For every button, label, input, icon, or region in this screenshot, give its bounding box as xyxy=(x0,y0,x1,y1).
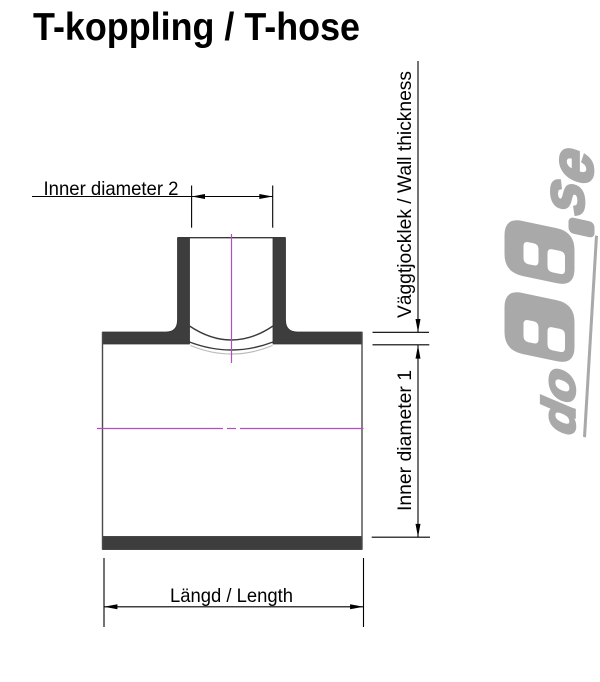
svg-text:Väggtjocklek / Wall thickness: Väggtjocklek / Wall thickness xyxy=(394,71,416,318)
svg-text:do: do xyxy=(533,363,584,438)
svg-text:Inner diameter 1: Inner diameter 1 xyxy=(394,370,416,511)
svg-text:Längd / Length: Längd / Length xyxy=(170,585,293,607)
svg-text:T-koppling / T-hose: T-koppling / T-hose xyxy=(33,6,360,49)
svg-text:Inner diameter 2: Inner diameter 2 xyxy=(44,178,179,200)
